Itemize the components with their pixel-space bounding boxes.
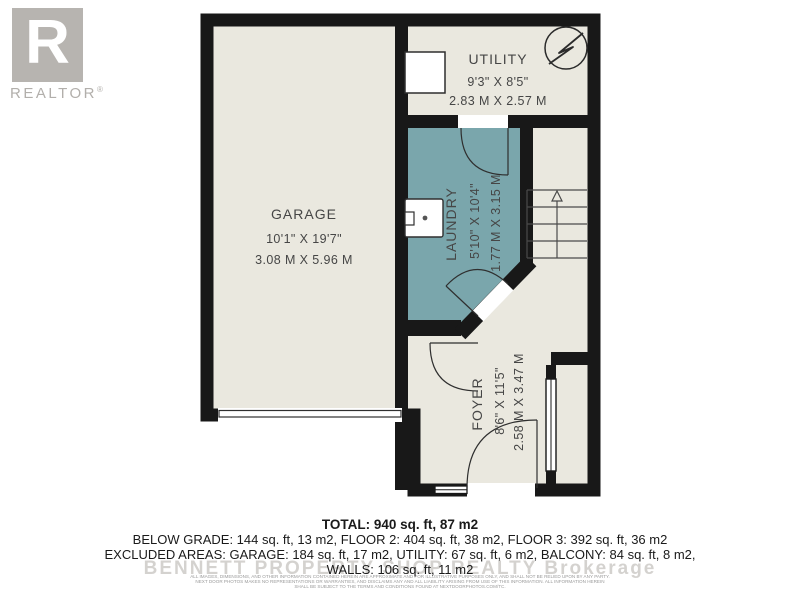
utility-door-opening <box>458 115 508 128</box>
laundry-imperial: 5'10" X 10'4" <box>468 183 482 259</box>
laundry-label: LAUNDRY <box>443 187 459 261</box>
utility-imperial: 9'3" X 8'5" <box>467 75 528 89</box>
walls-area-line: WALLS: 106 sq. ft, 11 m2 <box>0 562 800 577</box>
utility-bottom-wall-left <box>395 115 458 128</box>
right-window-top-stub <box>546 365 556 379</box>
sink-icon <box>405 199 443 237</box>
total-area-line: TOTAL: 940 sq. ft, 87 m2 <box>0 517 800 532</box>
garage-door <box>219 411 401 418</box>
foyer-label: FOYER <box>469 377 485 430</box>
laundry-metric: 1.77 M X 3.15 M <box>489 174 503 272</box>
foyer-imperial: 8'6" X 11'5" <box>493 367 507 435</box>
garage-label: GARAGE <box>271 206 337 222</box>
floor-plan-svg: GARAGE 10'1" X 19'7" 3.08 M X 5.96 M UTI… <box>0 0 800 520</box>
excluded-area-line: EXCLUDED AREAS: GARAGE: 184 sq. ft, 17 m… <box>0 547 800 562</box>
utility-metric: 2.83 M X 2.57 M <box>449 94 547 108</box>
laundry-bottom-wall <box>395 320 461 336</box>
utility-label: UTILITY <box>468 51 527 67</box>
garage-imperial: 10'1" X 19'7" <box>266 232 342 246</box>
appliance-box <box>405 52 445 93</box>
foyer-niche-wall <box>551 352 594 365</box>
area-summary: TOTAL: 940 sq. ft, 87 m2 BELOW GRADE: 14… <box>0 517 800 577</box>
floorplan-page: R REALTOR® <box>0 0 800 600</box>
foyer-metric: 2.58 M X 3.47 M <box>512 353 526 451</box>
floors-area-line: BELOW GRADE: 144 sq. ft, 13 m2, FLOOR 2:… <box>0 532 800 547</box>
disclaimer-line-3: SHALL BE SUBJECT TO THE TERMS AND CONDIT… <box>0 584 800 589</box>
entry-door-opening <box>467 483 535 497</box>
right-window-bottom-stub <box>546 471 556 484</box>
front-window <box>435 486 467 494</box>
right-window <box>546 379 556 471</box>
garage-metric: 3.08 M X 5.96 M <box>255 253 353 267</box>
